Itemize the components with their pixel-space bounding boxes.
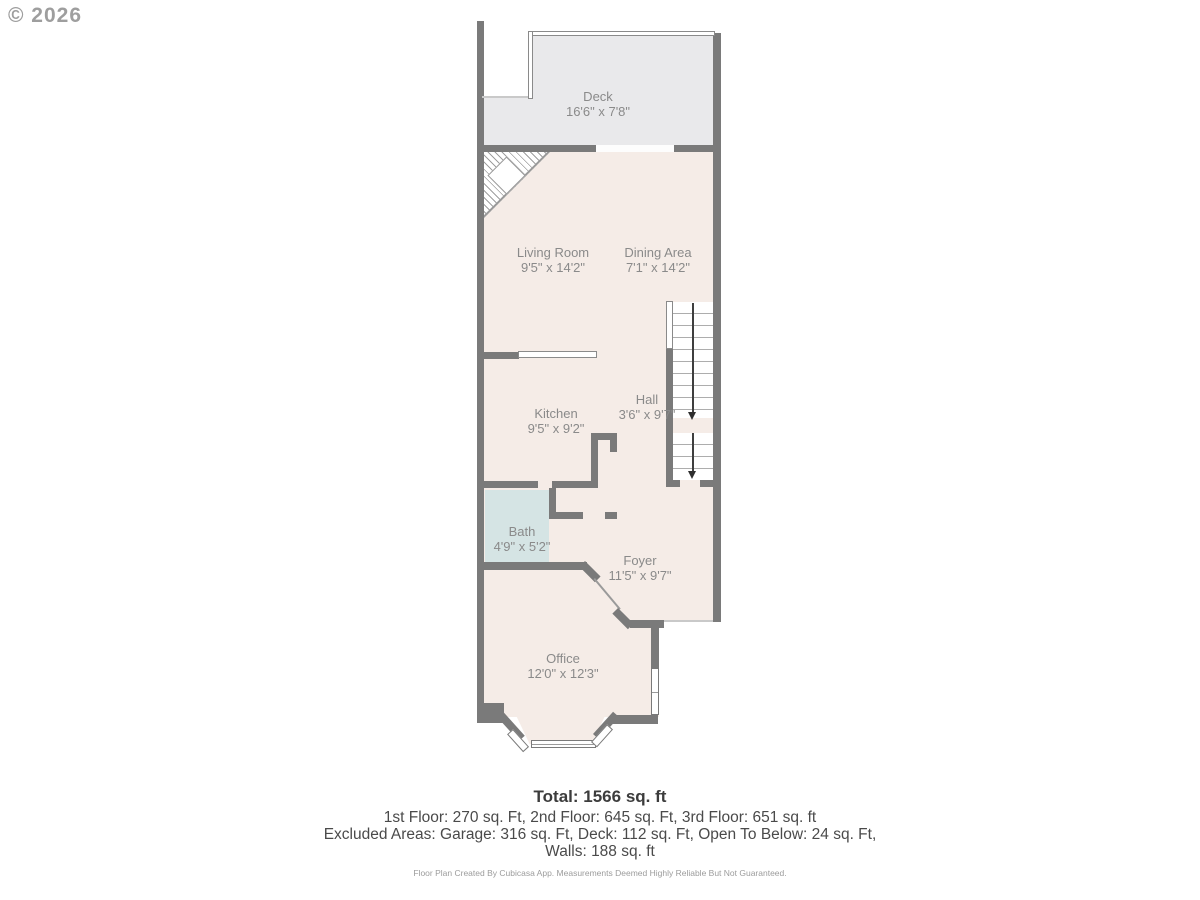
wall-segment: [591, 433, 598, 488]
wall-segment: [477, 352, 519, 359]
room-name: Office: [527, 651, 598, 666]
wall-segment: [700, 480, 714, 487]
floor-plan-page: © 2026: [0, 0, 1200, 900]
room-label-deck: Deck 16'6" x 7'8": [566, 89, 630, 119]
wall-segment: [651, 626, 659, 670]
room-dims: 16'6" x 7'8": [566, 104, 630, 119]
room-label-bath: Bath 4'9" x 5'2": [494, 524, 551, 554]
bay-window-center: [531, 740, 596, 748]
wall-segment: [477, 481, 538, 488]
wall-segment: [477, 21, 484, 723]
room-name: Bath: [494, 524, 551, 539]
wall-segment: [549, 512, 583, 519]
room-dims: 7'1" x 14'2": [624, 260, 691, 275]
total-area-text: Total: 1566 sq. ft: [0, 787, 1200, 807]
room-label-hall: Hall 3'6" x 9'7": [619, 392, 676, 422]
stair-railing: [666, 301, 673, 349]
wall-segment: [605, 512, 617, 519]
room-label-living-room: Living Room 9'5" x 14'2": [517, 245, 589, 275]
room-name: Foyer: [608, 553, 671, 568]
room-name: Kitchen: [528, 406, 585, 421]
wall-segment: [666, 480, 680, 487]
room-label-office: Office 12'0" x 12'3": [527, 651, 598, 681]
deck-door-opening: [596, 145, 674, 152]
room-dims: 9'5" x 14'2": [517, 260, 589, 275]
room-label-kitchen: Kitchen 9'5" x 9'2": [528, 406, 585, 436]
kitchen-counter: [518, 351, 597, 358]
room-dims: 11'5" x 9'7": [608, 568, 671, 583]
deck-edge-line: [482, 96, 528, 98]
wall-segment: [674, 145, 721, 152]
stairs-down-arrow-head: [688, 412, 696, 420]
disclaimer-text: Floor Plan Created By Cubicasa App. Meas…: [0, 868, 1200, 878]
wall-segment: [552, 481, 598, 488]
office-floor: [484, 562, 659, 717]
wall-segment: [477, 145, 596, 152]
excluded-areas-text: Excluded Areas: Garage: 316 sq. Ft, Deck…: [0, 826, 1200, 843]
room-dims: 12'0" x 12'3": [527, 666, 598, 681]
office-side-window: [651, 668, 659, 715]
room-dims: 3'6" x 9'7": [619, 407, 676, 422]
stairs-down-arrow-line: [692, 303, 694, 414]
wall-segment: [477, 562, 587, 570]
room-dims: 9'5" x 9'2": [528, 421, 585, 436]
room-label-foyer: Foyer 11'5" x 9'7": [608, 553, 671, 583]
foyer-entry-line: [664, 620, 713, 622]
copyright-watermark: © 2026: [8, 4, 82, 28]
area-summary: Total: 1566 sq. ft 1st Floor: 270 sq. Ft…: [0, 787, 1200, 878]
room-name: Dining Area: [624, 245, 691, 260]
deck-railing-top: [528, 31, 715, 36]
deck-floor-left: [484, 97, 528, 145]
stairs-down-arrow-line-2: [692, 433, 694, 473]
room-label-dining-area: Dining Area 7'1" x 14'2": [624, 245, 691, 275]
stairs-down-arrow-head-2: [688, 471, 696, 479]
walls-area-text: Walls: 188 sq. ft: [0, 843, 1200, 860]
room-name: Living Room: [517, 245, 589, 260]
room-name: Hall: [619, 392, 676, 407]
wall-segment: [713, 33, 721, 622]
deck-railing-left: [528, 31, 533, 99]
room-name: Deck: [566, 89, 630, 104]
room-dims: 4'9" x 5'2": [494, 539, 551, 554]
wall-segment: [610, 433, 617, 452]
floor-areas-text: 1st Floor: 270 sq. Ft, 2nd Floor: 645 sq…: [0, 809, 1200, 826]
